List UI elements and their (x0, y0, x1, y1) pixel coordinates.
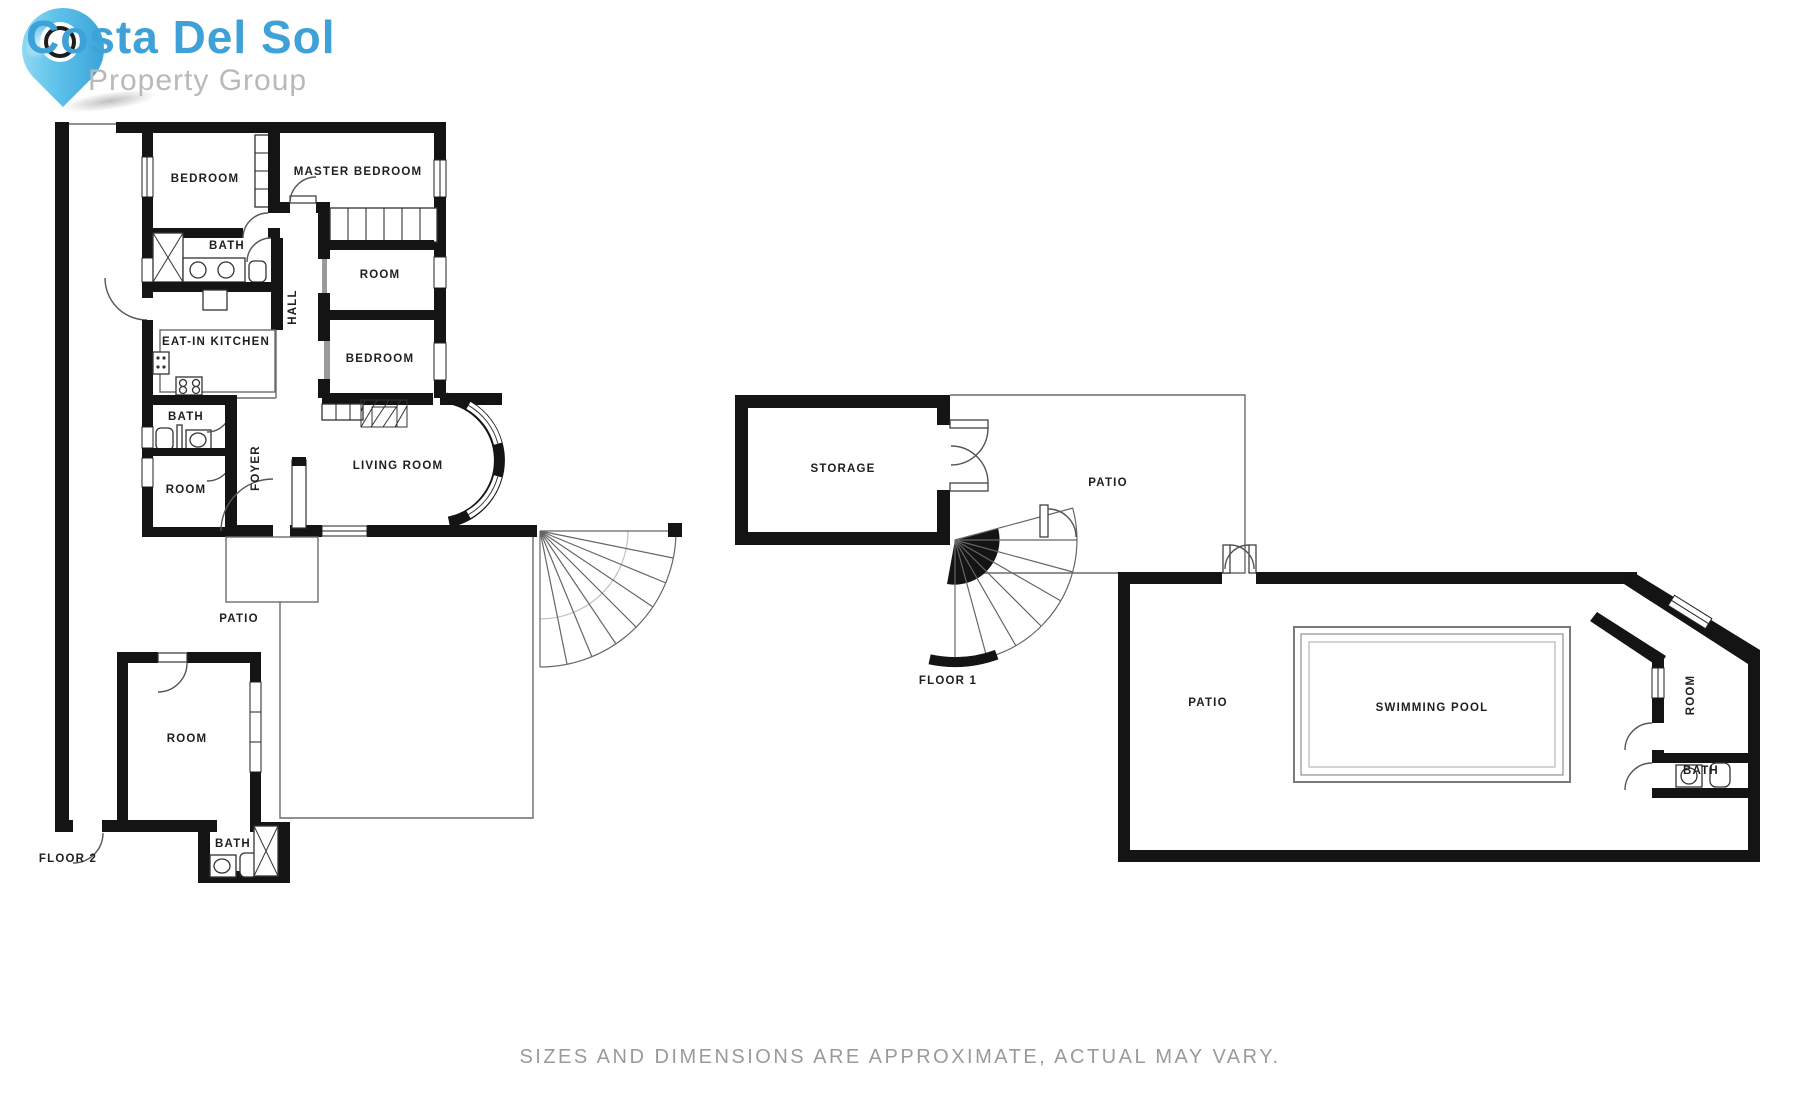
label-pool-bath: BATH (1683, 765, 1719, 777)
label-bath-bottom: BATH (215, 838, 251, 850)
label-patio-upper: PATIO (1088, 477, 1127, 489)
label-bath-mid: BATH (168, 411, 204, 423)
label-floor1: FLOOR 1 (919, 675, 977, 687)
label-master-bedroom: MASTER BEDROOM (294, 166, 423, 178)
label-living-room: LIVING ROOM (353, 460, 444, 472)
label-patio-pool: PATIO (1188, 697, 1227, 709)
floorplan-canvas: BEDROOM MASTER BEDROOM BATH ROOM HALL EA… (0, 0, 1800, 1100)
floorplan-page: Costa Del Sol Property Group (0, 0, 1800, 1100)
label-floor2: FLOOR 2 (39, 853, 97, 865)
brand-tagline: Property Group (88, 64, 307, 98)
label-swimming-pool: SWIMMING POOL (1376, 702, 1489, 714)
label-room-bottom: ROOM (167, 733, 208, 745)
label-room-mid: ROOM (166, 484, 207, 496)
label-pool-room: ROOM (1685, 675, 1697, 716)
label-storage: STORAGE (810, 463, 875, 475)
spiral-stairs-floor1 (930, 505, 1077, 662)
floor2-plan: BEDROOM MASTER BEDROOM BATH ROOM HALL EA… (39, 122, 682, 883)
label-kitchen: EAT-IN KITCHEN (162, 336, 270, 348)
label-bath-top: BATH (209, 240, 245, 252)
spiral-stairs-floor2 (540, 523, 682, 667)
label-bedroom-right: BEDROOM (346, 353, 414, 365)
brand-name: Costa Del Sol (26, 10, 336, 64)
disclaimer-text: SIZES AND DIMENSIONS ARE APPROXIMATE, AC… (0, 1046, 1800, 1069)
label-foyer: FOYER (250, 445, 262, 491)
label-room-right: ROOM (360, 269, 401, 281)
label-bedroom1: BEDROOM (171, 173, 239, 185)
label-patio-floor2: PATIO (219, 613, 258, 625)
floor1-plan: STORAGE PATIO FLOOR 1 PATIO SWIMMING POO… (735, 395, 1760, 862)
label-hall: HALL (287, 289, 299, 324)
